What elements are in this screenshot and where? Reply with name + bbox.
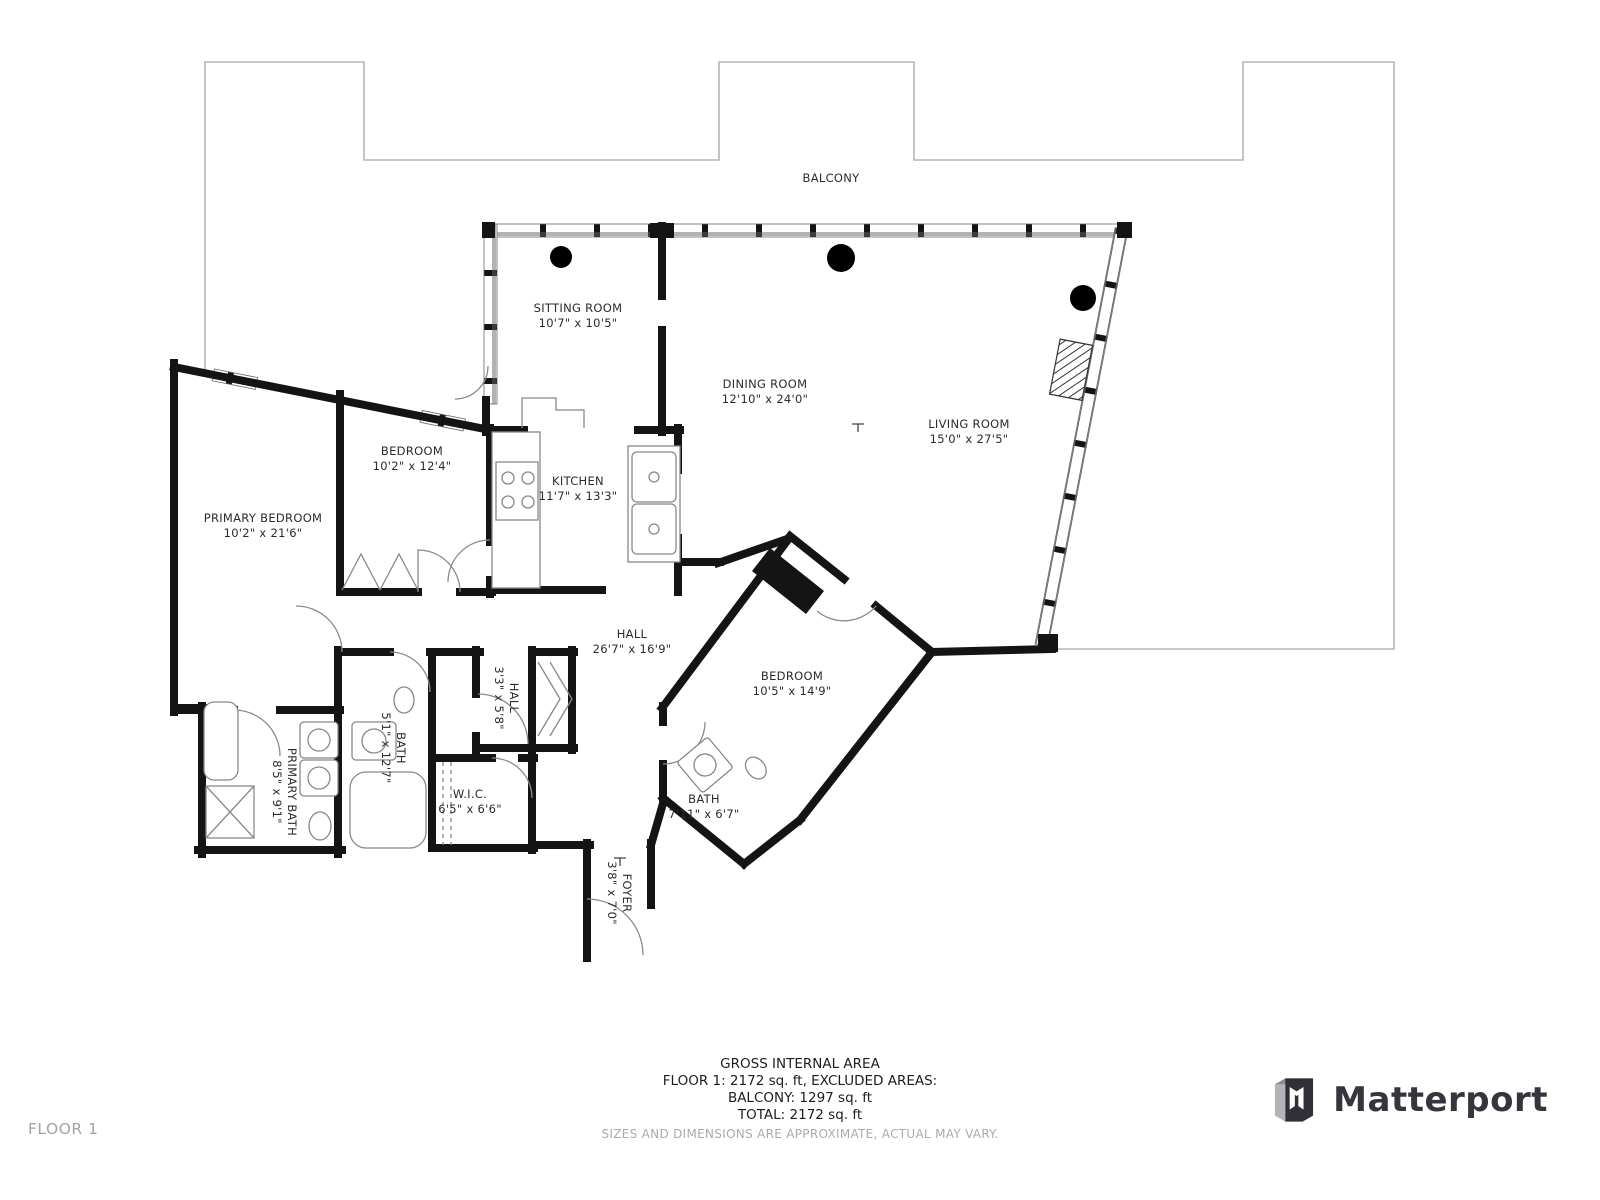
- room-label-primary-bedroom: PRIMARY BEDROOM: [204, 511, 323, 525]
- room-dims-sitting: 10'7" x 10'5": [539, 316, 618, 330]
- matterport-logo-icon: [1268, 1074, 1320, 1126]
- room-dims-hall: 26'7" x 16'9": [593, 642, 672, 656]
- room-label-wic: W.I.C.: [453, 787, 487, 801]
- stove: [496, 462, 538, 520]
- room-dims-hall2: 3'3" x 5'8": [492, 666, 506, 730]
- floor-label: FLOOR 1: [28, 1120, 98, 1138]
- camera-dots: [550, 244, 1096, 311]
- walls-layer: [174, 226, 1052, 958]
- bathtub: [204, 702, 238, 780]
- room-dims-bath2: 7'11" x 6'7": [668, 807, 739, 821]
- counter-step: [522, 398, 584, 428]
- room-label-sitting: SITTING ROOM: [534, 301, 623, 315]
- room-label-bedroom1: BEDROOM: [381, 444, 443, 458]
- floor-plan: BALCONY SITTING ROOM 10'7" x 10'5" DININ…: [0, 0, 1600, 1200]
- room-labels: BALCONY SITTING ROOM 10'7" x 10'5" DININ…: [204, 171, 1010, 925]
- bifold-closet: [342, 554, 418, 590]
- bifold-closet: [538, 662, 572, 736]
- room-label-balcony: BALCONY: [803, 171, 861, 185]
- room-dims-bedroom2: 10'5" x 14'9": [753, 684, 832, 698]
- room-dims-kitchen: 11'7" x 13'3": [539, 489, 618, 503]
- room-label-bath2: BATH: [688, 792, 720, 806]
- room-label-bath: BATH: [394, 732, 408, 764]
- camera-position-dot: [1070, 285, 1096, 311]
- room-label-primary-bath: PRIMARY BATH: [285, 748, 299, 836]
- room-dims-bath: 5'1" x 12'7": [379, 712, 393, 783]
- room-label-hall: HALL: [617, 627, 648, 641]
- room-label-hall2: HALL: [507, 683, 521, 714]
- camera-position-dot: [550, 246, 572, 268]
- room-dims-wic: 6'5" x 6'6": [438, 802, 502, 816]
- toilet: [394, 687, 414, 713]
- summary-title: GROSS INTERNAL AREA: [0, 1056, 1600, 1073]
- balcony-outline: [205, 62, 1394, 649]
- room-label-foyer: FOYER: [620, 874, 634, 913]
- room-dims-living: 15'0" x 27'5": [930, 432, 1009, 446]
- room-label-kitchen: KITCHEN: [552, 474, 604, 488]
- room-dims-foyer: 3'8" x 7'0": [605, 861, 619, 925]
- room-label-bedroom2: BEDROOM: [761, 669, 823, 683]
- camera-position-dot: [827, 244, 855, 272]
- room-dims-primary-bath: 8'5" x 9'1": [270, 760, 284, 824]
- room-dims-bedroom1: 10'2" x 12'4": [373, 459, 452, 473]
- matterport-logo: Matterport: [1268, 1074, 1548, 1126]
- matterport-wordmark: Matterport: [1333, 1080, 1548, 1120]
- room-dims-dining: 12'10" x 24'0": [722, 392, 808, 406]
- summary-disclaimer: SIZES AND DIMENSIONS ARE APPROXIMATE, AC…: [0, 1126, 1600, 1143]
- floorplan-page: BALCONY SITTING ROOM 10'7" x 10'5" DININ…: [0, 0, 1600, 1200]
- toilet: [309, 812, 331, 840]
- toilet: [741, 753, 770, 783]
- room-label-dining: DINING ROOM: [723, 377, 808, 391]
- door-arcs: [234, 366, 876, 955]
- room-label-living: LIVING ROOM: [928, 417, 1010, 431]
- room-dims-primary-bedroom: 10'2" x 21'6": [224, 526, 303, 540]
